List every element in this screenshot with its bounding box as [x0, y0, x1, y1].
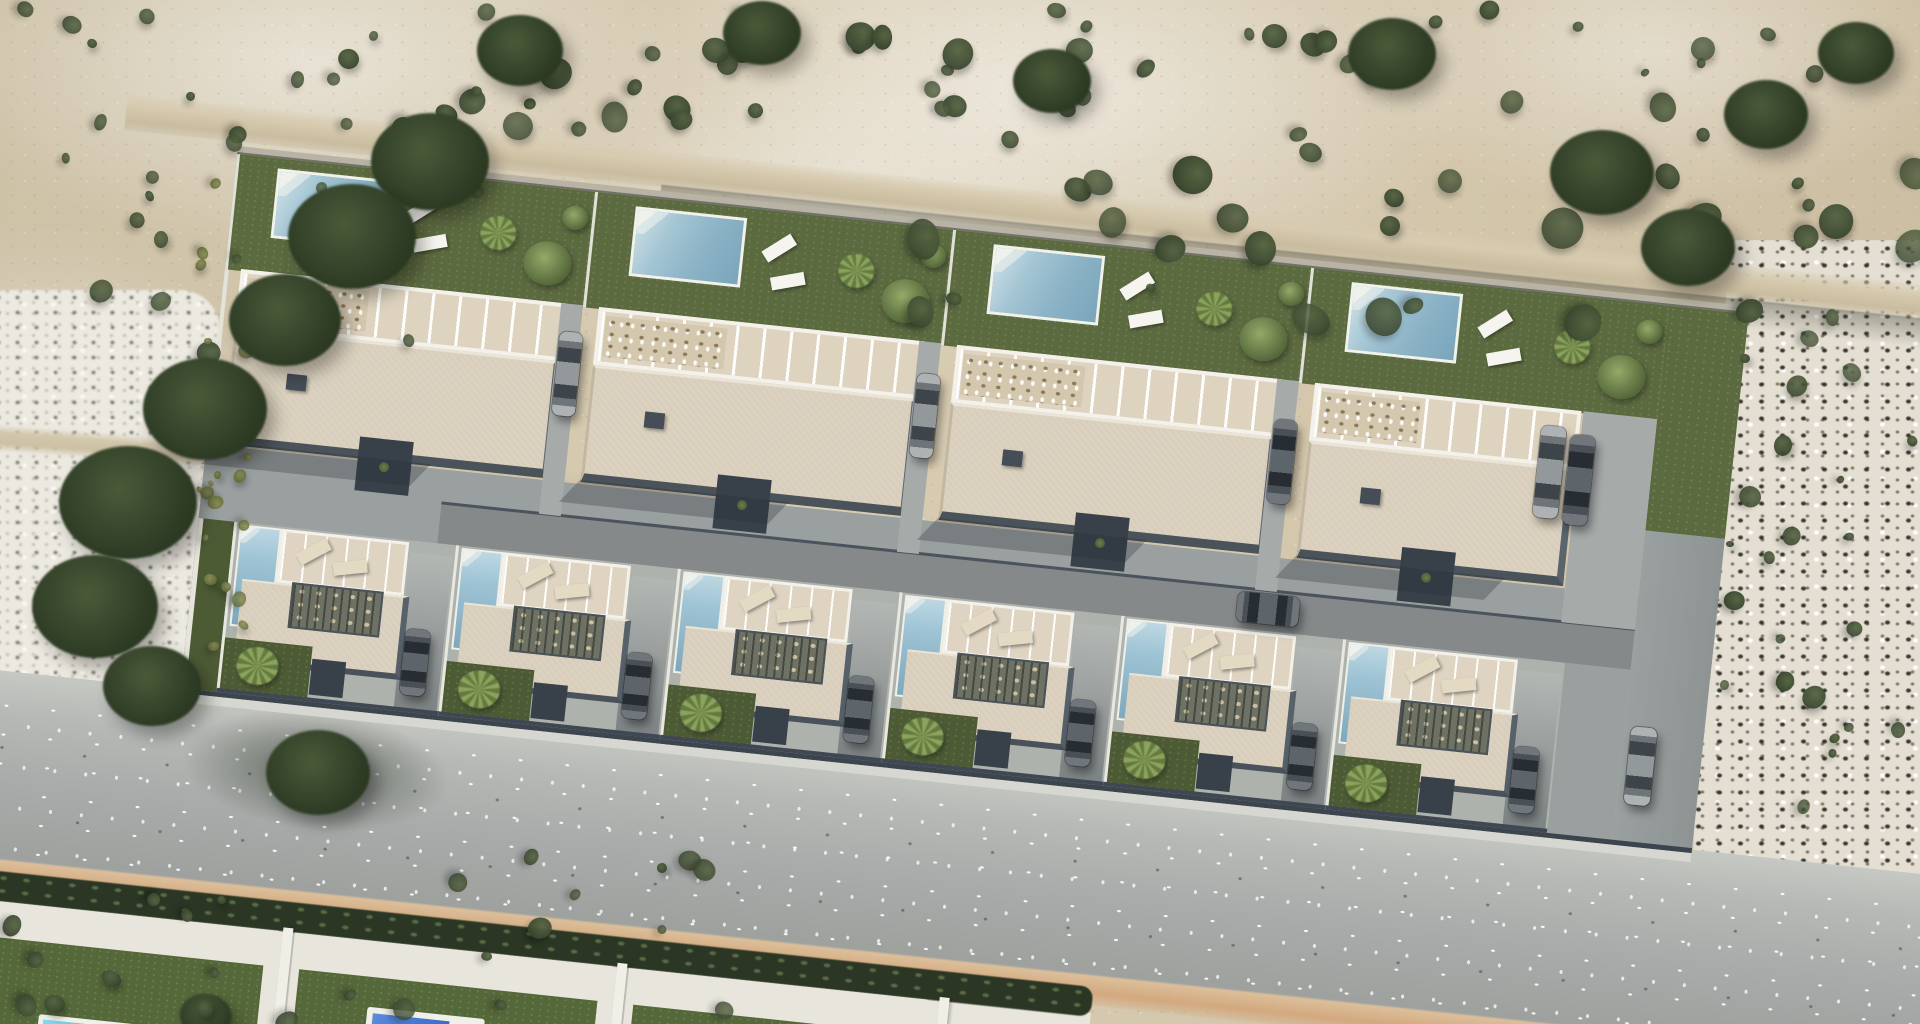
scrub-bush	[470, 85, 483, 98]
sun-lounger	[296, 538, 332, 565]
sun-lounger	[1441, 677, 1476, 693]
scrub-bush	[1045, 1, 1067, 20]
sunken-patio	[731, 629, 827, 684]
scrub-bush	[624, 76, 645, 98]
scrub-bush	[698, 33, 733, 66]
tree-mass	[1724, 80, 1808, 149]
scrub-bush	[642, 44, 664, 65]
sun-lounger	[1220, 653, 1255, 669]
scrub-bush	[1789, 175, 1807, 192]
scrub-bush	[1357, 42, 1381, 66]
scrub-bush	[732, 7, 749, 23]
sunken-patio	[1175, 676, 1271, 731]
scrub-bush	[335, 46, 362, 73]
scrub-bush	[86, 37, 99, 50]
villa-top-3	[919, 230, 1311, 590]
scrub-bush	[1297, 140, 1325, 166]
roof-hatch	[644, 411, 666, 429]
scrub-bush	[1476, 0, 1502, 23]
scrub-bush	[941, 93, 969, 119]
sun-lounger	[1404, 656, 1440, 683]
olive-shrub	[208, 176, 223, 190]
scrub-bush	[1812, 198, 1859, 245]
scrub-bush	[1639, 67, 1651, 78]
scrub-bush	[937, 33, 979, 76]
sun-lounger	[517, 562, 553, 589]
scrub-bush	[1381, 185, 1407, 211]
tree-mass	[1550, 130, 1654, 215]
entry-door-recess	[1417, 776, 1455, 815]
scrub-bush	[1296, 28, 1330, 61]
palm-plant	[234, 645, 280, 687]
scrub-bush	[873, 24, 893, 50]
scrub-bush	[1694, 126, 1711, 144]
tree-mass	[1013, 49, 1091, 113]
scrub-bush	[15, 0, 37, 21]
entry-door-recess	[752, 706, 790, 745]
roof-hatch	[1002, 449, 1024, 467]
scrub-bush	[145, 170, 160, 185]
scrub-bush	[1261, 23, 1288, 49]
scrub-bush	[1572, 20, 1585, 32]
olive-shrub	[195, 245, 210, 261]
villa-bottom-4	[882, 592, 1122, 786]
olive-shrub	[194, 257, 209, 272]
scrub-bush	[1433, 164, 1466, 197]
scrub-bush	[1676, 195, 1728, 244]
palm-plant	[678, 692, 724, 734]
scrub-bush	[290, 70, 305, 89]
scrub-bush	[533, 52, 577, 95]
scrub-bush	[368, 30, 380, 43]
scrub-bush	[1055, 98, 1078, 120]
villa-bottom-1	[216, 522, 456, 716]
palm-plant	[1121, 739, 1167, 781]
scrub-bush	[715, 51, 739, 76]
scrub-bush	[1758, 25, 1778, 43]
scrub-bush	[1310, 27, 1341, 58]
scrub-bush	[1073, 85, 1094, 108]
palm-plant	[1343, 762, 1389, 804]
scrub-bush	[1356, 61, 1384, 89]
sun-lounger	[1183, 632, 1219, 659]
entry-door-recess	[530, 682, 568, 721]
scrub-bush	[848, 30, 871, 56]
sun-lounger	[554, 583, 589, 599]
scrub-bush	[522, 96, 536, 110]
villa-top-4	[1277, 268, 1669, 628]
roof-hatch	[286, 373, 308, 391]
scrub-bush	[568, 119, 589, 140]
scrub-bush	[1646, 89, 1680, 126]
scrub-bush	[1895, 154, 1920, 196]
scrub-bush	[601, 101, 629, 133]
tree-mass	[1818, 22, 1894, 84]
scrub-bush	[1078, 18, 1094, 35]
sun-lounger	[776, 606, 811, 622]
driving-car-central-road	[1236, 591, 1301, 627]
scrub-bush	[1426, 13, 1445, 32]
scrub-bush	[1080, 165, 1117, 199]
scrub-bush	[1687, 33, 1718, 64]
garden-pool	[1344, 282, 1463, 363]
scrub-bush	[474, 0, 498, 24]
scrub-bush	[1074, 71, 1085, 83]
sunken-patio	[953, 653, 1049, 708]
scrub-bush	[722, 26, 764, 68]
scrub-bush	[136, 6, 157, 28]
sun-lounger	[739, 585, 775, 612]
scrub-bush	[1802, 62, 1827, 87]
scrub-bush	[432, 101, 461, 128]
scrub-bush	[921, 78, 943, 101]
scrub-bush	[931, 97, 955, 120]
sunken-patio	[1396, 700, 1492, 755]
scrub-bush	[325, 71, 342, 88]
scrub-bush	[1336, 50, 1364, 77]
scrub-bush	[1656, 240, 1667, 251]
scrub-bush	[1354, 34, 1372, 51]
palm-plant	[900, 715, 946, 757]
scrub-bush	[1651, 158, 1685, 194]
scrub-bush	[1065, 37, 1093, 63]
sun-lounger	[998, 630, 1033, 646]
scrub-bush	[1627, 156, 1655, 184]
scrub-bush	[143, 189, 155, 203]
scrub-bush	[1243, 27, 1256, 42]
entry-door-recess	[309, 659, 347, 698]
scrub-bush	[1800, 197, 1816, 214]
scrub-bush	[1133, 56, 1159, 82]
villa-bottom-6	[1325, 639, 1565, 833]
scrub-bush	[745, 100, 766, 121]
scrub-bush	[1496, 86, 1528, 118]
entry-door-recess	[1196, 753, 1234, 792]
sunken-patio	[509, 606, 605, 661]
scrub-bush	[154, 231, 169, 248]
neighbor-lawn	[612, 1005, 912, 1024]
sunken-patio	[287, 582, 383, 637]
scrub-bush	[658, 90, 696, 128]
villa-bottom-2	[438, 545, 678, 739]
garden-pool	[270, 168, 389, 249]
villa-bottom-3	[660, 569, 900, 763]
scrub-bush	[998, 127, 1022, 152]
sun-lounger	[333, 559, 368, 575]
roof-hatch	[1360, 487, 1382, 505]
tree-mass	[723, 1, 801, 65]
entry-door-recess	[974, 729, 1012, 768]
scrub-bush	[667, 107, 695, 133]
villa-bottom-5	[1103, 616, 1343, 810]
scrub-bush	[1040, 59, 1060, 80]
scrub-bush	[92, 112, 109, 132]
palm-plant	[456, 668, 502, 710]
garden-pool	[628, 206, 747, 287]
scrub-bush	[1696, 58, 1706, 69]
tree-mass	[1348, 18, 1436, 90]
villa-top-1	[203, 154, 595, 514]
scrub-bush	[1168, 151, 1217, 199]
scrub-bush	[59, 13, 84, 37]
villa-top-2	[561, 192, 953, 552]
scrub-bush	[61, 153, 70, 164]
scrub-bush	[845, 22, 875, 52]
scrub-bush	[1287, 125, 1309, 144]
scrub-bush	[940, 64, 955, 78]
sun-lounger	[961, 609, 997, 636]
aerial-render-scene	[0, 0, 1920, 1024]
scrub-bush	[128, 210, 146, 229]
tree-mass	[477, 15, 563, 86]
scrub-bush	[454, 84, 490, 120]
garden-pool	[986, 244, 1105, 325]
